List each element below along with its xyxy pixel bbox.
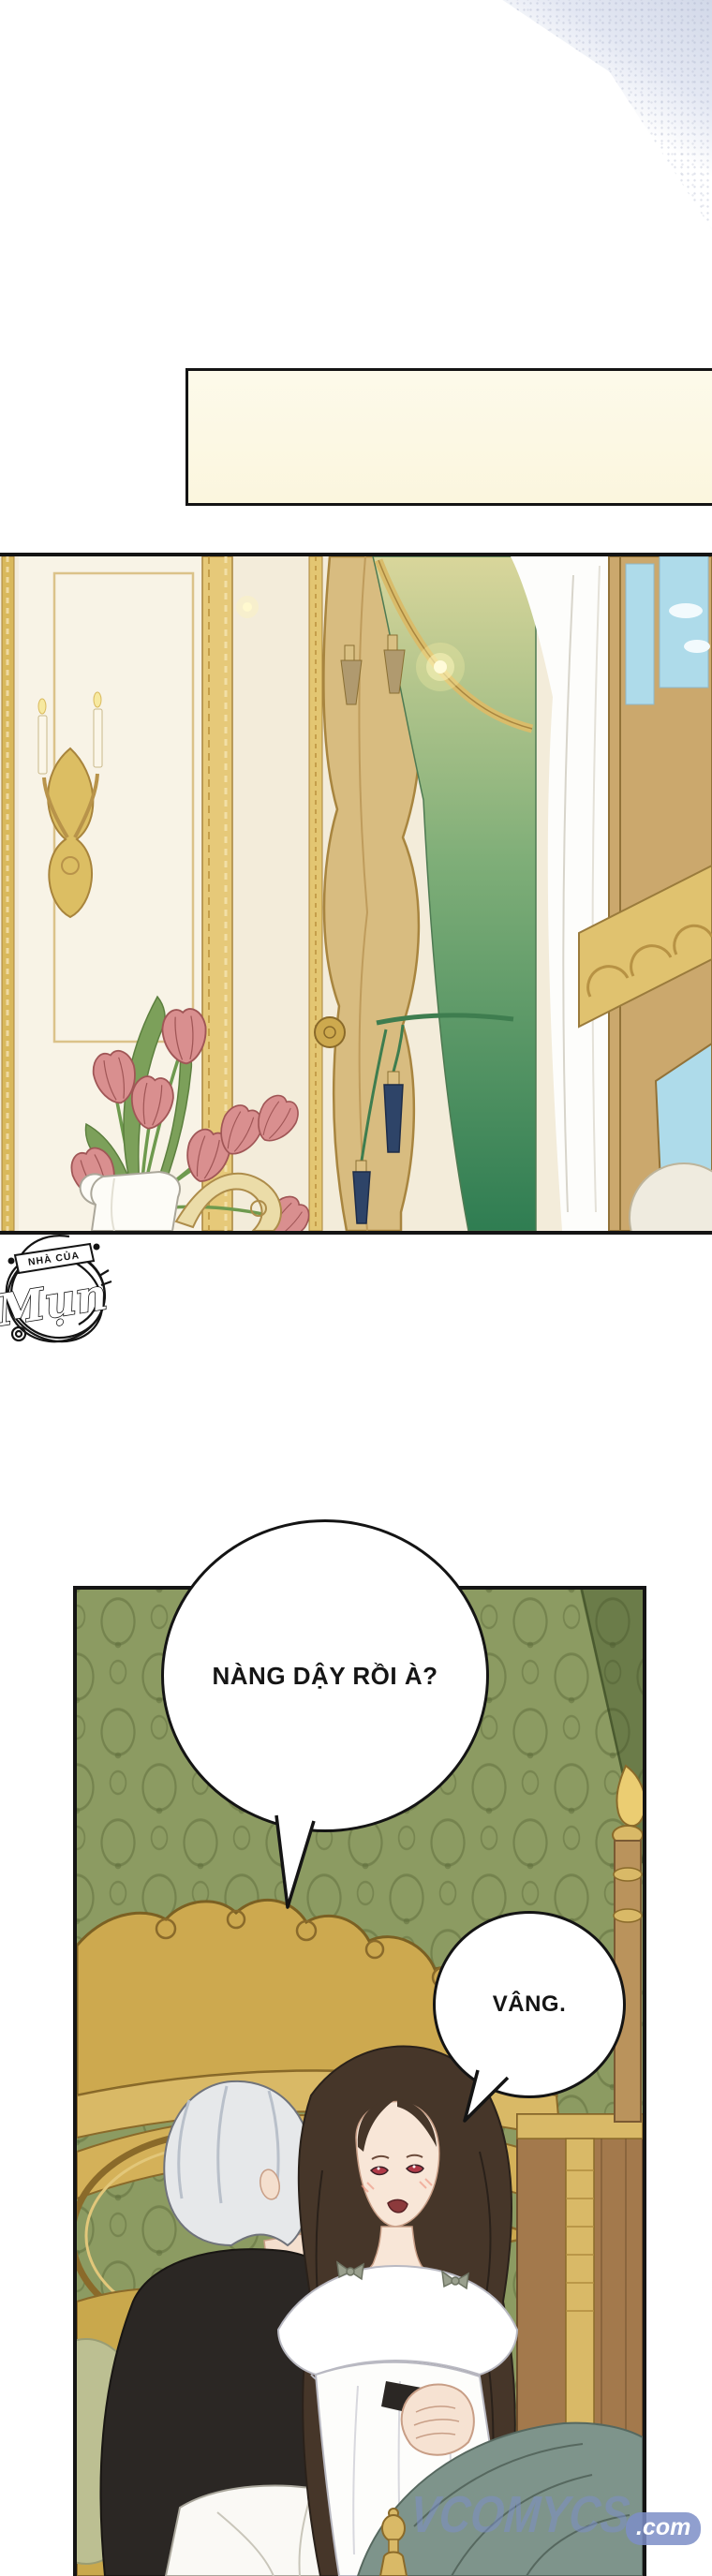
translator-logo: NHÀ CỦA Mụn bbox=[0, 1227, 114, 1355]
vase bbox=[91, 1172, 180, 1231]
speech-text-2: VÂNG. bbox=[493, 1991, 567, 2018]
panel-palace-room bbox=[0, 553, 712, 1235]
watermark-site-text: VCOMYCS bbox=[408, 2484, 631, 2544]
speech-text-1: NÀNG DẬY RỒI À? bbox=[212, 1662, 438, 1691]
bubble-1-tail bbox=[265, 1806, 331, 1917]
watermark-tld-badge: .com bbox=[626, 2512, 701, 2545]
caption-box bbox=[185, 368, 712, 506]
bubble-2-tail bbox=[457, 2066, 517, 2126]
bed-post bbox=[613, 1766, 643, 2122]
logo-name-text: Mụn bbox=[0, 1268, 111, 1336]
corner-speckle-texture bbox=[468, 0, 712, 240]
palace-room-scene bbox=[0, 556, 712, 1231]
comic-page: NHÀ CỦA Mụn bbox=[0, 0, 712, 2576]
speech-bubble-1: NÀNG DẬY RỒI À? bbox=[161, 1519, 489, 1832]
